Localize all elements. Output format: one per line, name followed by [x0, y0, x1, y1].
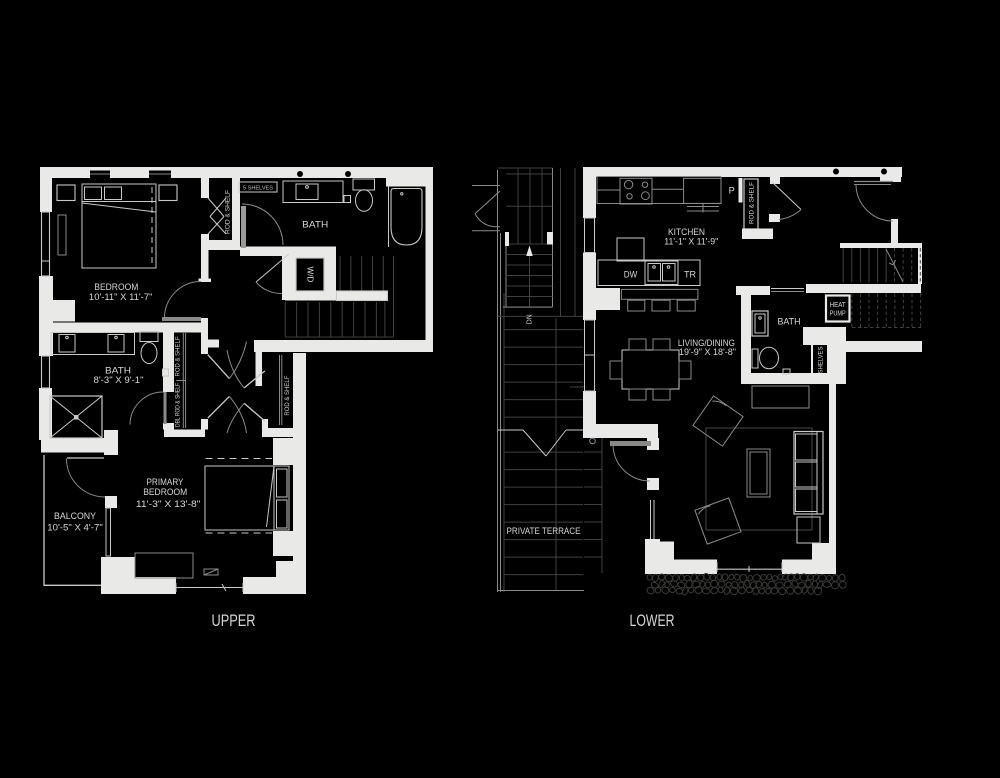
svg-text:10'-5" X 4'-7": 10'-5" X 4'-7": [47, 523, 103, 534]
svg-text:19'-9" X 18'-8": 19'-9" X 18'-8": [679, 347, 736, 357]
svg-text:10'-11" X 11'-7": 10'-11" X 11'-7": [89, 292, 153, 302]
svg-text:UPPER: UPPER: [212, 611, 256, 630]
svg-text:ROD & SHELF: ROD & SHELF: [749, 182, 756, 224]
svg-text:LOWER: LOWER: [630, 611, 675, 630]
svg-text:TR: TR: [684, 270, 696, 281]
svg-text:BEDROOM: BEDROOM: [143, 487, 187, 497]
svg-text:P: P: [729, 186, 735, 196]
svg-text:ROD & SHELF: ROD & SHELF: [284, 375, 291, 415]
svg-text:BEDROOM: BEDROOM: [94, 282, 138, 292]
svg-text:DW: DW: [624, 270, 638, 281]
svg-text:ROD & SHELF: ROD & SHELF: [225, 190, 232, 234]
svg-text:DBL ROD & SHELF: DBL ROD & SHELF: [174, 383, 181, 427]
svg-text:DN: DN: [525, 314, 534, 324]
svg-text:BATH: BATH: [778, 316, 801, 326]
svg-text:8'-3" X 9'-1": 8'-3" X 9'-1": [94, 375, 144, 385]
svg-text:11'-1" X 11'-9": 11'-1" X 11'-9": [664, 237, 718, 247]
svg-text:W/D: W/D: [306, 267, 316, 283]
svg-text:BATH: BATH: [302, 220, 328, 230]
svg-text:BATH: BATH: [105, 366, 131, 376]
svg-text:ROD & SHELF: ROD & SHELF: [174, 336, 181, 376]
svg-text:11'-3" X 13'-8": 11'-3" X 13'-8": [136, 499, 201, 509]
svg-text:KITCHEN: KITCHEN: [668, 227, 705, 237]
svg-text:PRIMARY: PRIMARY: [147, 477, 184, 487]
svg-text:5 SHELVES: 5 SHELVES: [243, 186, 273, 192]
svg-text:PUMP: PUMP: [830, 309, 846, 318]
svg-text:SHELVES: SHELVES: [818, 347, 825, 374]
svg-text:PRIVATE TERRACE: PRIVATE TERRACE: [507, 526, 581, 536]
svg-text:BALCONY: BALCONY: [54, 511, 97, 522]
